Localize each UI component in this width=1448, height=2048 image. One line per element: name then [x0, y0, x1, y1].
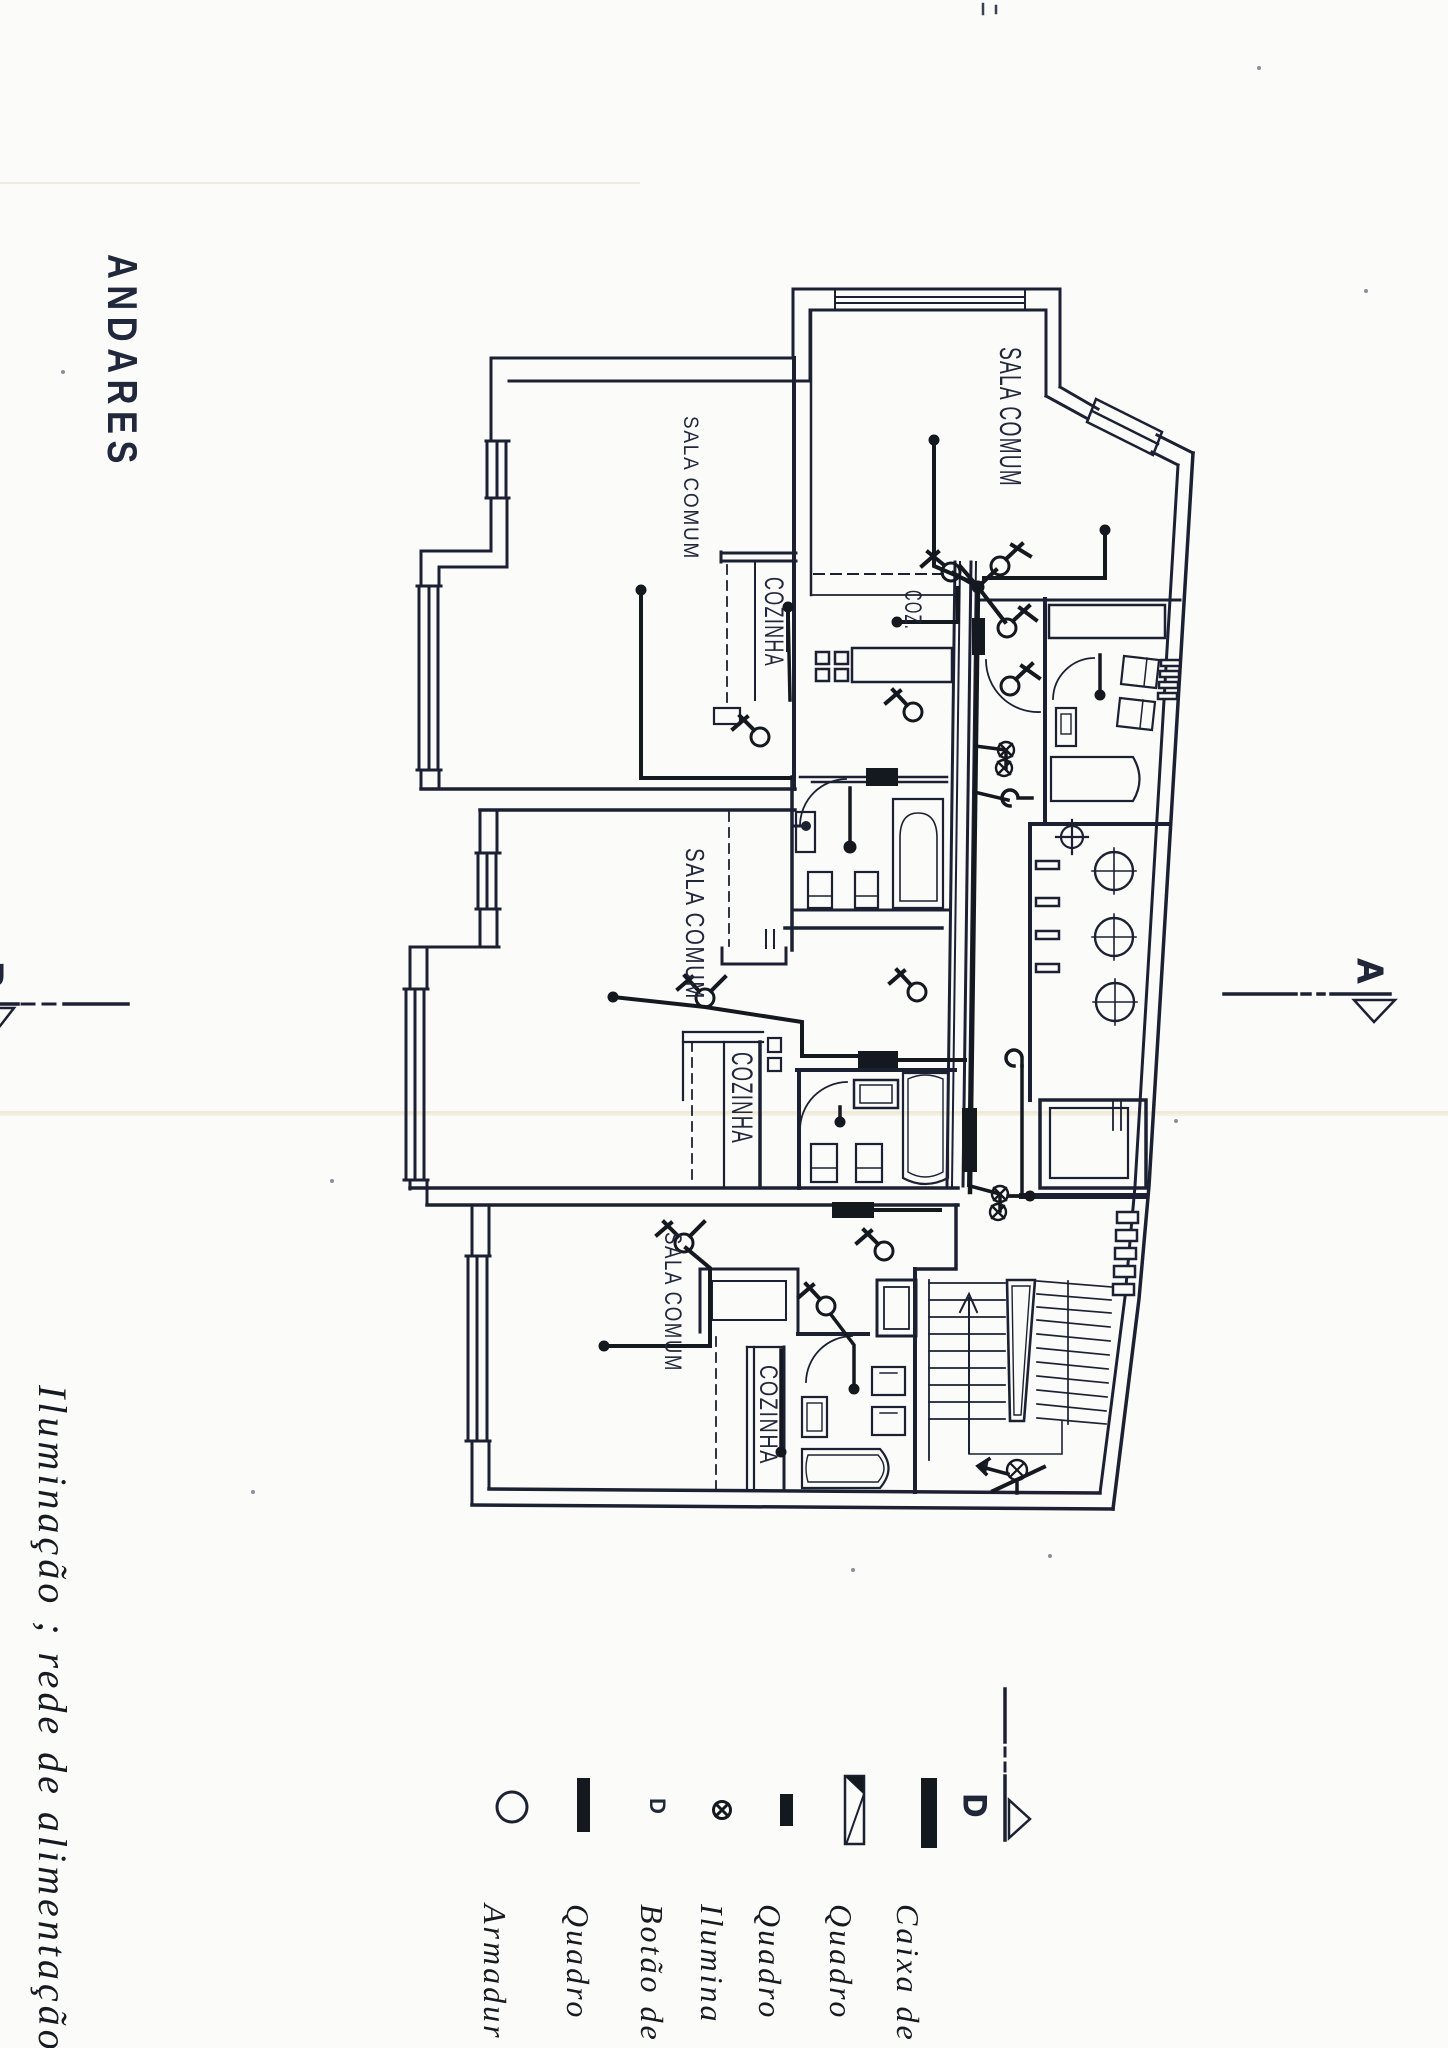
svg-text:Iluminação ; rede de alimentaç: Iluminação ; rede de alimentação: [30, 1384, 75, 2048]
svg-text:ANDARES: ANDARES: [99, 254, 146, 470]
svg-text:SALA COMUM: SALA COMUM: [679, 416, 702, 560]
svg-text:D: D: [957, 1794, 993, 1819]
svg-text:B: B: [0, 962, 11, 990]
svg-text:Armadur: Armadur: [477, 1902, 513, 2041]
svg-text:Caixa de c: Caixa de c: [890, 1904, 926, 2048]
svg-text:Botão de: Botão de: [634, 1904, 670, 2043]
svg-text:SALA COMUM: SALA COMUM: [993, 347, 1028, 487]
svg-text:Quadro: Quadro: [752, 1904, 788, 2020]
svg-text:COZINHA: COZINHA: [725, 1052, 758, 1144]
svg-text:D: D: [645, 1798, 670, 1816]
svg-text:SALA COMUM: SALA COMUM: [680, 848, 710, 1000]
svg-text:SALA COMUM: SALA COMUM: [659, 1232, 686, 1372]
svg-text:COZ.: COZ.: [899, 590, 926, 630]
svg-text:A: A: [1350, 958, 1391, 986]
svg-text:Quadro: Quadro: [823, 1904, 859, 2020]
svg-text:Quadro: Quadro: [560, 1904, 596, 2020]
svg-text:COZINHA: COZINHA: [754, 1365, 782, 1465]
svg-text:Ilumina: Ilumina: [694, 1903, 730, 2025]
svg-text:COZINHA: COZINHA: [759, 577, 789, 667]
